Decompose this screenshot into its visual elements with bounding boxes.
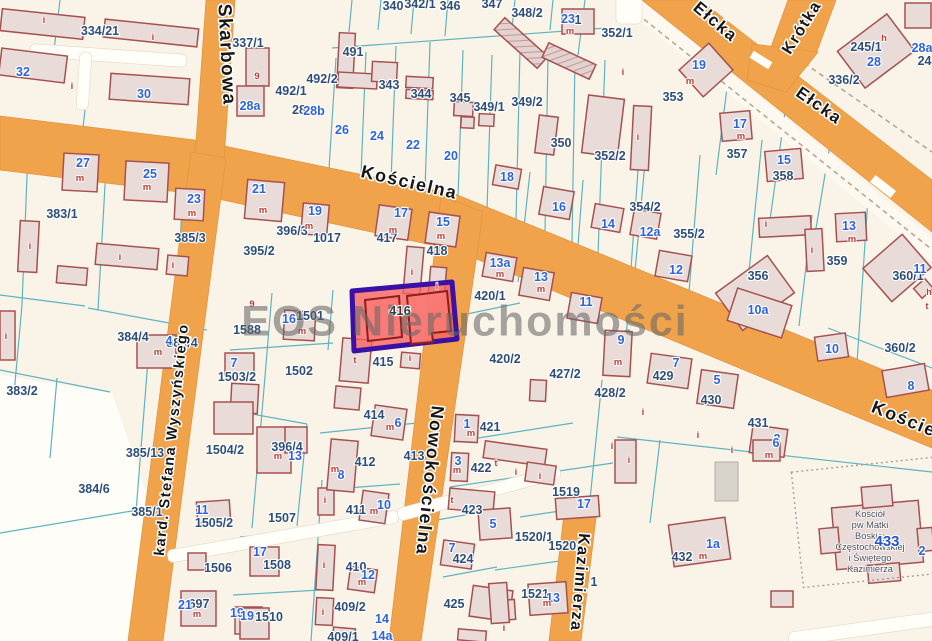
parcel-boundary-line <box>233 590 320 595</box>
building <box>630 106 651 171</box>
selected-parcel-number: 416 <box>389 303 411 318</box>
building <box>805 229 824 272</box>
parcel-label: 245 <box>918 54 932 68</box>
house-number: 19 <box>240 609 254 623</box>
map-symbol-mark: m <box>566 26 574 37</box>
parcel-boundary-line <box>495 560 567 570</box>
parcel-label: 348/2 <box>511 6 542 20</box>
house-number: 4 <box>166 334 173 348</box>
parcel-label: 414 <box>364 408 385 422</box>
building <box>582 95 625 157</box>
map-symbol-mark: i <box>172 260 175 271</box>
parcel-boundary-line <box>0 295 85 306</box>
parcel-label: 1501 <box>296 309 324 323</box>
map-symbol-mark: i <box>71 81 74 92</box>
building <box>0 311 15 360</box>
map-symbol-mark: m <box>543 598 551 609</box>
parcel-label: 491 <box>343 45 364 59</box>
house-number: 5 <box>490 517 497 531</box>
building <box>334 386 361 410</box>
map-symbol-mark: i <box>515 467 518 478</box>
map-symbol-mark: m <box>699 551 707 562</box>
building <box>214 402 253 434</box>
map-symbol-mark: i <box>324 495 327 506</box>
map-symbol-mark: m <box>259 205 267 216</box>
building <box>529 380 546 402</box>
building <box>483 441 547 466</box>
parcel-label: 1588 <box>233 323 261 337</box>
church-name-line: pw Matki <box>852 520 889 530</box>
parcel-label: 428/2 <box>594 386 625 400</box>
parcel-label: 425 <box>444 597 465 611</box>
parcel-boundary-line <box>487 55 492 209</box>
church-name-line: i Świętego <box>849 552 892 563</box>
house-number: 30 <box>137 87 151 101</box>
map-symbol-mark: i <box>43 15 46 26</box>
parcel-label: 342/1 <box>404 0 435 11</box>
house-number: 12a <box>640 225 662 239</box>
map-symbol-mark: i <box>503 623 506 634</box>
parcel-label: 1 <box>575 13 582 27</box>
map-symbol-mark: m <box>437 231 445 242</box>
house-number: 10 <box>825 342 839 356</box>
building <box>315 598 333 626</box>
parcel-boundary-line <box>516 50 520 221</box>
building <box>95 243 159 269</box>
building <box>56 266 87 286</box>
map-symbol-mark: i <box>436 281 439 292</box>
parcel-label: 431 <box>748 416 769 430</box>
parcel-label: 432 <box>672 550 693 564</box>
parcel-label: 384/6 <box>78 482 109 496</box>
parcel-label: 357 <box>727 147 748 161</box>
map-symbol-mark: m <box>614 357 622 368</box>
house-number: 11 <box>913 262 926 276</box>
parcel-label: 415 <box>373 355 394 369</box>
parcel-label: 344 <box>411 87 432 101</box>
house-number: 19 <box>308 204 322 218</box>
parcel-label: 492/1 <box>275 84 306 98</box>
map-symbol-mark: m <box>143 182 151 193</box>
house-number: 21 <box>178 598 192 612</box>
parcel-label: 1506 <box>204 561 232 575</box>
parcel-boundary-line <box>328 290 333 350</box>
building <box>905 3 931 28</box>
house-number: 17 <box>253 545 267 559</box>
map-symbol-mark: i <box>323 560 326 571</box>
building <box>316 545 335 591</box>
parcel-label: 427/2 <box>549 367 580 381</box>
map-symbol-mark: m <box>331 464 339 475</box>
house-number: 6 <box>773 436 780 450</box>
house-number: 28b <box>303 104 325 118</box>
house-number: 8 <box>908 379 915 393</box>
parcel-label: 346 <box>440 0 461 13</box>
parcel-boundary-line <box>425 42 430 189</box>
parcel-label: 411 <box>346 503 366 517</box>
map-symbol-mark: i <box>731 445 734 456</box>
parcel-label: 1507 <box>268 511 296 525</box>
house-number: 14 <box>601 217 615 231</box>
parcel-boundary-line <box>550 0 553 30</box>
minor-road <box>788 612 932 641</box>
house-number: 16 <box>552 200 566 214</box>
parcel-label: 383/1 <box>46 207 77 221</box>
map-symbol-mark: m <box>848 234 856 245</box>
map-symbol-mark: m <box>686 76 694 87</box>
parcel-label: 345 <box>450 91 471 105</box>
parcel-label: 1510 <box>255 610 283 624</box>
map-symbol-mark: m <box>305 221 313 232</box>
house-number: 25 <box>143 167 157 181</box>
house-number: 26 <box>335 123 349 137</box>
parcel-label: 423 <box>462 503 483 517</box>
house-number: 5 <box>714 373 721 387</box>
house-number: 23 <box>187 192 201 206</box>
map-symbol-mark: m <box>496 269 504 280</box>
parcel-label: 422 <box>471 461 492 475</box>
parcel-boundary-line <box>230 343 333 350</box>
map-symbol-mark: i <box>811 245 814 256</box>
building <box>166 255 189 276</box>
building <box>771 591 793 607</box>
house-number: 13 <box>842 219 856 233</box>
parcel-label: 1504/2 <box>206 443 244 457</box>
building <box>458 629 487 641</box>
parcel-label: 385/13 <box>126 446 164 460</box>
map-symbol-mark: m <box>389 225 397 236</box>
parcel-label: 355/2 <box>673 227 704 241</box>
parcel-label: 340 <box>383 0 404 13</box>
map-symbol-mark: i <box>322 607 325 618</box>
house-number: 2 <box>919 544 926 558</box>
house-number: 17 <box>733 117 747 131</box>
house-number: 28a <box>912 41 932 55</box>
map-symbol-mark: i <box>765 219 768 230</box>
parcel-label: 354/2 <box>629 200 660 214</box>
building <box>615 440 636 483</box>
map-symbol-mark: 9 <box>254 71 259 82</box>
building <box>542 43 596 79</box>
parcel-label: 396/3 <box>276 224 307 238</box>
map-symbol-mark: m <box>298 326 306 337</box>
parcel-label: 492/2 <box>306 72 337 86</box>
map-symbol-mark: m <box>193 609 201 620</box>
utility-building <box>715 462 738 501</box>
parcel-label: 413 <box>404 449 425 463</box>
map-symbol-mark: m <box>467 428 475 439</box>
parcel-label: 1 <box>591 575 598 589</box>
house-number: 15 <box>436 215 450 229</box>
parcel-label: 420/1 <box>474 289 505 303</box>
building <box>489 582 510 623</box>
parcel-boundary-line <box>378 0 381 30</box>
parcel-label: 336/2 <box>828 73 859 87</box>
house-number: 7 <box>673 356 680 370</box>
house-number: 14 <box>375 612 389 626</box>
parcel-label: 245/1 <box>850 40 881 54</box>
map-symbol-mark: i <box>622 67 625 78</box>
map-symbol-mark: i <box>611 441 614 452</box>
parcel-label: 421 <box>480 420 501 434</box>
house-number: 32 <box>16 65 30 79</box>
map-symbol-mark: i <box>642 407 645 418</box>
house-number: 10a <box>748 303 770 317</box>
parcel-label: 385/3 <box>174 231 205 245</box>
parcel-boundary-line <box>650 440 660 523</box>
map-symbol-mark: i <box>628 455 631 466</box>
house-number: 11 <box>579 295 592 309</box>
building <box>461 117 475 129</box>
map-symbol-mark: m <box>154 347 162 358</box>
map-symbol-mark: m <box>358 577 366 588</box>
house-number: 23 <box>561 12 575 26</box>
map-symbol-mark: i <box>152 32 155 43</box>
map-symbol-mark: 9 <box>249 299 254 310</box>
map-symbol-mark: m <box>765 450 773 461</box>
house-number: 27 <box>76 156 90 170</box>
parcel-label: 349/1 <box>473 100 504 114</box>
map-symbol-mark: i <box>5 331 8 342</box>
house-number: 28 <box>867 55 881 69</box>
parcel-boundary-line <box>462 303 520 315</box>
house-number: 10 <box>377 498 391 512</box>
parcel-label: 343 <box>379 78 400 92</box>
parcel-label: 412 <box>355 455 376 469</box>
parcel-label: 430 <box>701 393 722 407</box>
house-number: 7 <box>449 541 456 555</box>
house-number: 19 <box>692 58 706 72</box>
house-number: 9 <box>618 333 625 347</box>
parcel-label: 409/1 <box>327 630 358 641</box>
house-number: 7 <box>231 356 238 370</box>
parcel-label: 384/4 <box>117 330 148 344</box>
church-name-line: Kazimierza <box>847 564 894 574</box>
building <box>479 114 495 127</box>
house-number: 13a <box>490 256 512 270</box>
map-symbol-mark: m <box>537 284 545 295</box>
parcel-label: 1503/2 <box>218 370 256 384</box>
building <box>861 485 893 509</box>
house-number: 14a <box>372 629 394 641</box>
parcel-label: 356 <box>748 269 769 283</box>
map-symbol-mark: i <box>29 241 32 252</box>
map-symbol-mark: t <box>925 301 929 312</box>
parcel-label: 350 <box>551 136 572 150</box>
parcel-label: 1519 <box>552 485 580 499</box>
house-number: 15 <box>777 153 791 167</box>
house-number: 13 <box>288 449 302 463</box>
map-symbol-mark: h <box>926 287 932 298</box>
parcel-label: 420/2 <box>489 352 520 366</box>
map-symbol-mark: i <box>697 430 700 441</box>
parcel-label: 334/21 <box>81 24 119 38</box>
map-symbol-mark: m <box>188 208 196 219</box>
house-number: 21 <box>252 182 266 196</box>
parcel-label: 352/2 <box>594 149 625 163</box>
parcel-boundary-line <box>262 293 272 412</box>
map-canvas[interactable]: 334/21337/1492/2492/128340342/1346347348… <box>0 0 932 641</box>
house-number: 17 <box>577 497 591 511</box>
parcel-label: 395/2 <box>243 244 274 258</box>
house-number: 22 <box>406 138 420 152</box>
parcel-label: 424 <box>453 552 474 566</box>
map-symbol-mark: i <box>119 252 122 263</box>
house-number: 11 <box>195 503 208 517</box>
parcel-boundary-line <box>572 58 575 243</box>
cadastral-map: 334/21337/1492/2492/128340342/1346347348… <box>0 0 932 641</box>
map-symbol-mark: m <box>370 506 378 517</box>
house-number: 16 <box>282 312 296 326</box>
map-symbol-mark: m <box>274 451 282 462</box>
minor-road <box>76 52 92 111</box>
house-number: 18 <box>500 170 514 184</box>
map-symbol-mark: i <box>539 471 542 482</box>
church-parcel-number: 433 <box>874 533 899 550</box>
parcel-label: 1508 <box>263 558 291 572</box>
parcel-boundary-line <box>349 0 352 32</box>
parcel-label: 349/2 <box>511 95 542 109</box>
map-symbol-mark: i <box>411 267 414 278</box>
parcel-label: 429 <box>653 369 674 383</box>
parcel-label: 353 <box>663 90 684 104</box>
house-number: 13 <box>534 270 548 284</box>
parcel-label: 383/2 <box>6 384 37 398</box>
map-symbol-mark: m <box>737 131 745 142</box>
light-parcel-area <box>0 375 152 641</box>
parcel-label: 1502 <box>285 364 313 378</box>
church-name-line: Kościół <box>855 509 885 519</box>
parcel-boundary-line <box>361 52 366 175</box>
house-number: 17 <box>394 206 408 220</box>
map-symbol-mark: i <box>409 353 412 364</box>
house-number: 20 <box>444 149 458 163</box>
map-symbol-mark: i <box>637 132 640 143</box>
map-symbol-mark: m <box>76 173 84 184</box>
parcel-label: 409/2 <box>334 600 365 614</box>
parcel-label: 1017 <box>313 231 341 245</box>
parcel-label: 360/2 <box>884 341 915 355</box>
house-number: 1a <box>706 537 721 551</box>
parcel-label: 358 <box>773 169 794 183</box>
parcel-label: 352/1 <box>601 26 632 40</box>
map-symbol-mark: m <box>453 465 461 476</box>
map-symbol-mark: h <box>881 33 887 44</box>
building <box>494 18 548 69</box>
map-symbol-mark: m <box>386 422 394 433</box>
parcel-label: 1505/2 <box>195 516 233 530</box>
house-number: 28a <box>240 99 262 113</box>
minor-road <box>616 0 642 24</box>
house-number: 12 <box>669 263 683 277</box>
parcel-label: 418 <box>427 244 448 258</box>
parcel-label: 359 <box>827 254 848 268</box>
house-number: 6 <box>395 416 402 430</box>
parcel-label: 347 <box>482 0 503 11</box>
house-number: 24 <box>370 129 384 143</box>
